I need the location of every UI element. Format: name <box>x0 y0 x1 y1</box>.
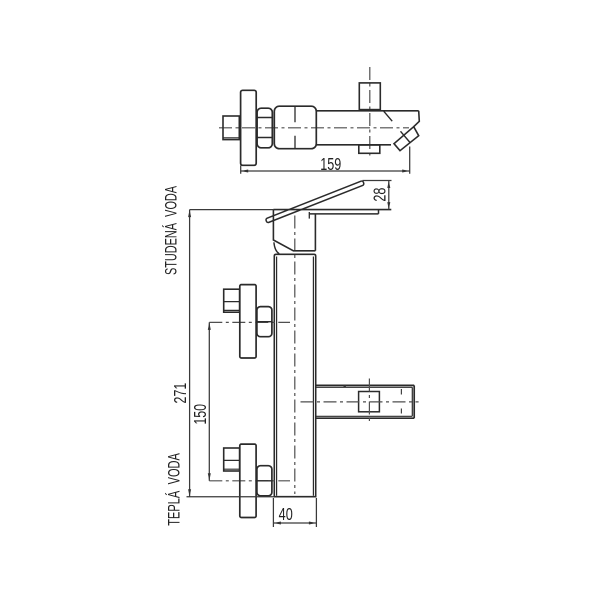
svg-text:40: 40 <box>279 505 293 524</box>
svg-text:271: 271 <box>171 383 191 404</box>
svg-text:28: 28 <box>371 188 391 202</box>
svg-text:159: 159 <box>320 155 341 175</box>
svg-text:TEPLÁ VODA: TEPLÁ VODA <box>164 453 184 526</box>
svg-text:STUDENÁ VODA: STUDENÁ VODA <box>161 186 181 275</box>
svg-text:150: 150 <box>191 404 211 425</box>
